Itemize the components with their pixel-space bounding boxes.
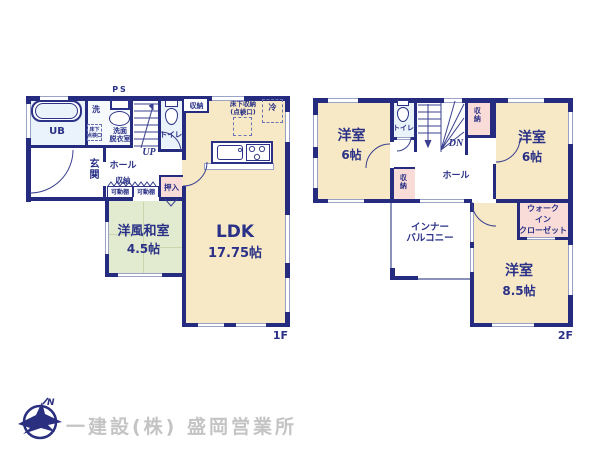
ldk-label: LDK: [182, 222, 288, 242]
window: [420, 199, 464, 203]
window: [444, 98, 462, 103]
window: [285, 112, 290, 142]
window: [568, 112, 573, 144]
ub-label: UB: [30, 126, 84, 138]
wall: [161, 149, 182, 152]
wall: [390, 168, 394, 199]
kitchen-stove: [246, 144, 270, 161]
washitsu-size: 4.5帖: [105, 242, 182, 256]
wic-label: ウォーク イン クローゼット: [516, 204, 570, 236]
dn-label: DN: [442, 138, 470, 150]
washer-label: 洗: [88, 105, 104, 115]
wall: [390, 276, 418, 280]
ldk-size: 17.75帖: [182, 246, 288, 262]
opening: [397, 137, 411, 140]
window: [285, 278, 290, 312]
company-name: 一建設(株) 盛岡営業所: [66, 412, 297, 439]
ldk-storage-label: 収納: [184, 102, 209, 110]
up-label: UP: [134, 147, 164, 159]
movable-shelf-label: 可動棚: [133, 189, 159, 196]
wall: [88, 145, 133, 148]
opening: [472, 199, 496, 203]
fridge-label: 冷: [262, 103, 283, 113]
hall-storage-label-2f: 収納: [399, 174, 407, 190]
toilet-tank-2f: [397, 100, 409, 106]
window: [328, 98, 358, 103]
ps-duct-box: [110, 99, 130, 110]
bedroom-right-size: 6帖: [496, 150, 568, 164]
staircase-1f: [133, 96, 161, 152]
floor1-label: 1F: [260, 329, 288, 342]
wall: [493, 164, 496, 199]
toilet-label-2f: トイレ: [389, 124, 418, 132]
underfloor-hatch-label: 床下 点検口: [87, 127, 102, 139]
bedroom-main-size: 8.5帖: [470, 284, 568, 298]
bedroom-main-label: 洋室: [470, 263, 568, 280]
oshiire-label: 押入: [161, 183, 182, 192]
ps-label: PS: [108, 85, 132, 95]
hall-label-2f: ホール: [433, 171, 479, 182]
bedroom-left-label: 洋室: [313, 128, 390, 145]
window: [470, 212, 474, 242]
kitchen-counter-face: [204, 163, 274, 170]
logo-bird-icon: [18, 402, 62, 434]
floorplan-canvas: PS UB 洗 洗面 脱衣室 床下 点検口 トイレ UP ホール 収納 可動棚 …: [0, 0, 600, 450]
toilet-tank-1f: [165, 100, 178, 107]
washitsu-label: 洋風和室: [105, 224, 182, 240]
bathtub-inner: [35, 103, 78, 119]
wall: [159, 175, 183, 177]
bedroom-right-label: 洋室: [496, 130, 568, 147]
underfloor-storage-label: 床下収納 (点検口): [220, 101, 266, 117]
underfloor-storage-box: [233, 117, 252, 136]
wall: [158, 96, 161, 152]
window: [198, 323, 224, 327]
sanitary-label: 洗面 脱衣室: [106, 127, 134, 144]
window: [568, 245, 573, 295]
entrance-label: 玄関: [86, 158, 98, 180]
window: [508, 98, 544, 103]
kitchen-sink: [217, 145, 243, 160]
toilet-label-1f: トイレ: [157, 130, 185, 139]
movable-shelf-label: 可動棚: [107, 189, 133, 196]
bedroom-left-size: 6帖: [313, 148, 390, 162]
washbasin: [109, 111, 130, 126]
window: [492, 323, 534, 327]
wall: [103, 148, 106, 162]
bedroom-right: [496, 98, 568, 199]
wall: [394, 167, 415, 169]
floor2-label: 2F: [545, 329, 573, 342]
stair-storage-label: 収納: [473, 107, 481, 123]
window: [236, 323, 266, 327]
window: [313, 158, 318, 188]
opening: [133, 197, 159, 201]
hall-label-1f: ホール: [102, 161, 144, 172]
wall: [103, 186, 106, 200]
window: [118, 273, 162, 277]
wall: [390, 98, 394, 142]
hall-storage-label: 収納: [110, 176, 136, 185]
logo-circle: [24, 406, 56, 438]
window: [328, 199, 364, 203]
logo-letter: N: [47, 398, 55, 408]
wic-opening: [527, 237, 555, 240]
wall: [26, 145, 88, 148]
balcony-label: インナー バルコニー: [390, 222, 470, 245]
